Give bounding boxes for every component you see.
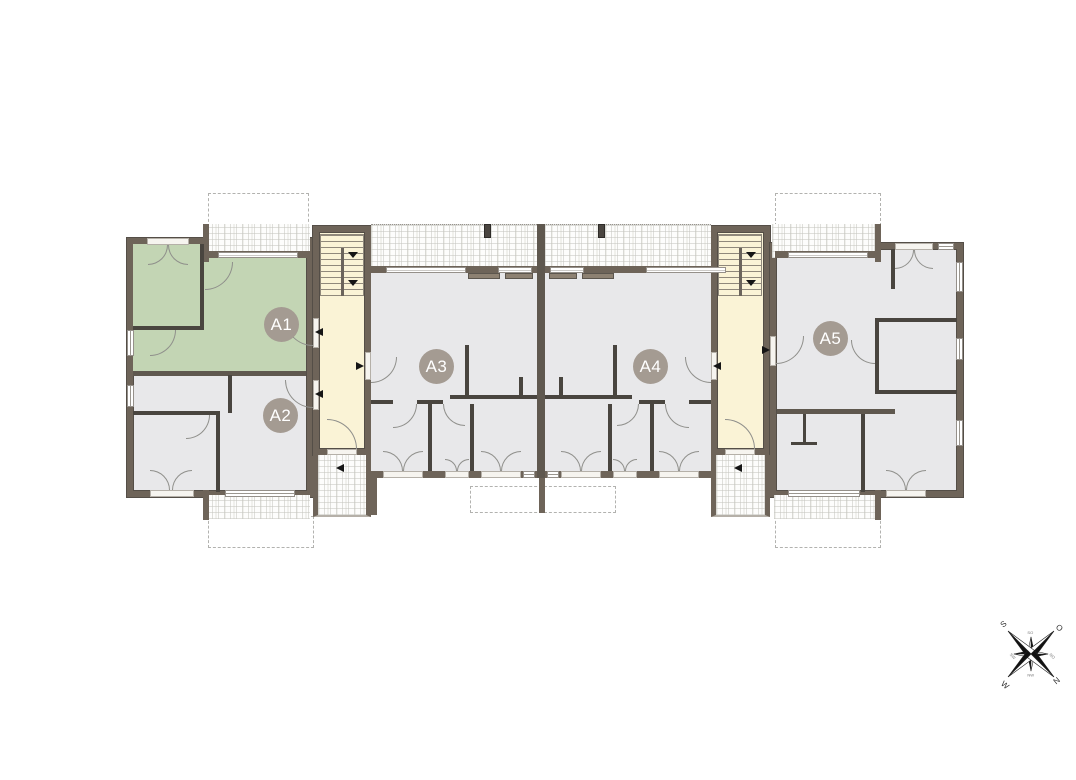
window-sill — [505, 273, 533, 279]
apartment-label-a3[interactable]: A3 — [419, 349, 454, 384]
door-opening-a4-balcony — [659, 471, 699, 478]
wall-a5-room-top — [879, 318, 957, 322]
building-block-right — [770, 243, 963, 497]
wall-a3-kitchen-counter — [450, 395, 537, 399]
wall-a5-bath-bottom — [875, 390, 957, 394]
wall-a2-room — [216, 411, 220, 492]
bed-symbol-foot — [791, 442, 817, 445]
stairs-right-direction-arrow-icon — [746, 280, 756, 286]
terrace-post-left — [484, 224, 491, 238]
entrance-arrow-icon — [734, 464, 742, 472]
door-opening-a1-top — [147, 238, 189, 245]
door-opening-a4-terrace — [561, 471, 601, 478]
terrace-post-right — [598, 224, 605, 238]
window-a2-terrace — [225, 490, 295, 497]
wall-stub-terrace-a5-bottom — [875, 490, 881, 520]
stairs-left-rail — [341, 248, 344, 296]
window-a5-top — [938, 243, 954, 250]
window-a5-bottom — [788, 490, 860, 497]
wall-a4-bath-right — [608, 404, 612, 471]
wall-a4-kitchen-stub — [559, 377, 563, 397]
window-a2-left — [127, 385, 134, 407]
wall-a4-bath-left — [650, 404, 654, 471]
wall-a3-bath-left — [428, 404, 432, 471]
compass-northeast-label: NO — [1048, 652, 1056, 660]
window-sill — [582, 273, 614, 279]
wall-a3-bath-right — [470, 404, 474, 471]
window-sill — [468, 273, 500, 279]
balcony-outline-bottom-left — [208, 516, 314, 548]
entrance-arrow-icon — [713, 362, 721, 370]
apartment-label-a2[interactable]: A2 — [263, 398, 298, 433]
wall-a3-kitchen-stub — [519, 377, 523, 397]
compass-rose-icon: S O N W SO NO NW SW — [986, 608, 1076, 700]
window-a5-terrace — [788, 252, 868, 258]
door-opening-a4-small — [613, 471, 637, 478]
door-opening-a3-terrace — [481, 471, 521, 478]
entrance-arrow-icon — [356, 362, 364, 370]
door-opening-a3-small — [445, 471, 469, 478]
compass-northwest-label: NW — [1027, 673, 1034, 678]
stairs-right-rail — [739, 248, 742, 296]
window-a1-left — [127, 330, 134, 356]
wall-a5-bath-left — [875, 318, 879, 394]
apartment-label-a5[interactable]: A5 — [813, 321, 848, 356]
window-a1-terrace — [218, 252, 298, 258]
terrace-a5-bottom — [774, 495, 878, 519]
wall-a1-room — [200, 244, 204, 330]
wall-a2-entry — [228, 375, 232, 413]
apartment-label-a1[interactable]: A1 — [264, 307, 299, 342]
compass-west-label: W — [999, 679, 1011, 691]
wall-stub-terrace-a2 — [203, 490, 209, 520]
door-opening-a5-bottom — [886, 490, 926, 497]
stairs-left-direction-arrow-icon — [348, 252, 358, 258]
wall-stub-terrace-a5 — [875, 224, 881, 262]
terrace-a2 — [206, 495, 310, 519]
window-a3-terrace-large — [386, 267, 466, 273]
compass-southwest-label: SW — [1009, 652, 1017, 660]
wall-a4-kitchen — [613, 345, 617, 397]
wall-a3-a4-divider — [537, 224, 545, 478]
wall-a5-bedroom-divider — [777, 409, 895, 414]
stairs-right-direction-arrow-icon — [746, 252, 756, 258]
window-a4-terrace-large — [646, 267, 726, 273]
door-opening-a5-top — [895, 243, 933, 250]
entrance-arrow-icon — [336, 464, 344, 472]
apartment-a1-area — [133, 244, 205, 373]
wall-a3-kitchen — [465, 345, 469, 397]
door-opening-stairwell-right — [725, 449, 755, 455]
window-a5-right-1 — [956, 262, 963, 292]
stairs-left-direction-arrow-icon — [348, 280, 358, 286]
balcony-outline-top-left — [208, 193, 309, 227]
wall-a1-a2-divider — [133, 371, 306, 376]
wall-stub-bottom-center — [539, 478, 545, 513]
window-a4-bottom — [547, 471, 559, 478]
balcony-outline-top-right — [775, 193, 881, 226]
bed-symbol — [803, 414, 806, 444]
window-a5-right-2 — [956, 338, 963, 360]
door-opening-stairwell-left — [327, 449, 357, 455]
wall-stub-bottom-left-middle — [371, 478, 377, 515]
compass-south-label: S — [999, 619, 1009, 630]
balcony-outline-bottom-right — [775, 516, 881, 548]
wall-a4-hall-1 — [689, 400, 711, 404]
door-opening-a2-bottom — [150, 490, 194, 497]
entrance-arrow-icon — [315, 390, 323, 398]
entrance-arrow-icon — [315, 328, 323, 336]
compass-north-label: N — [1052, 675, 1062, 686]
window-sill — [549, 273, 577, 279]
window-a3-bottom — [523, 471, 535, 478]
door-opening-a3-balcony — [383, 471, 423, 478]
entrance-arrow-icon — [762, 346, 770, 354]
wall-a5-bedroom — [861, 414, 865, 492]
compass-southeast-label: SO — [1027, 630, 1033, 635]
compass-east-label: O — [1054, 623, 1065, 634]
window-a5-right-3 — [956, 420, 963, 446]
apartment-label-a4[interactable]: A4 — [633, 349, 668, 384]
wall-a3-hall-1 — [371, 400, 393, 404]
floor-plan: A1 A2 A3 A4 A5 S O N — [0, 0, 1076, 780]
